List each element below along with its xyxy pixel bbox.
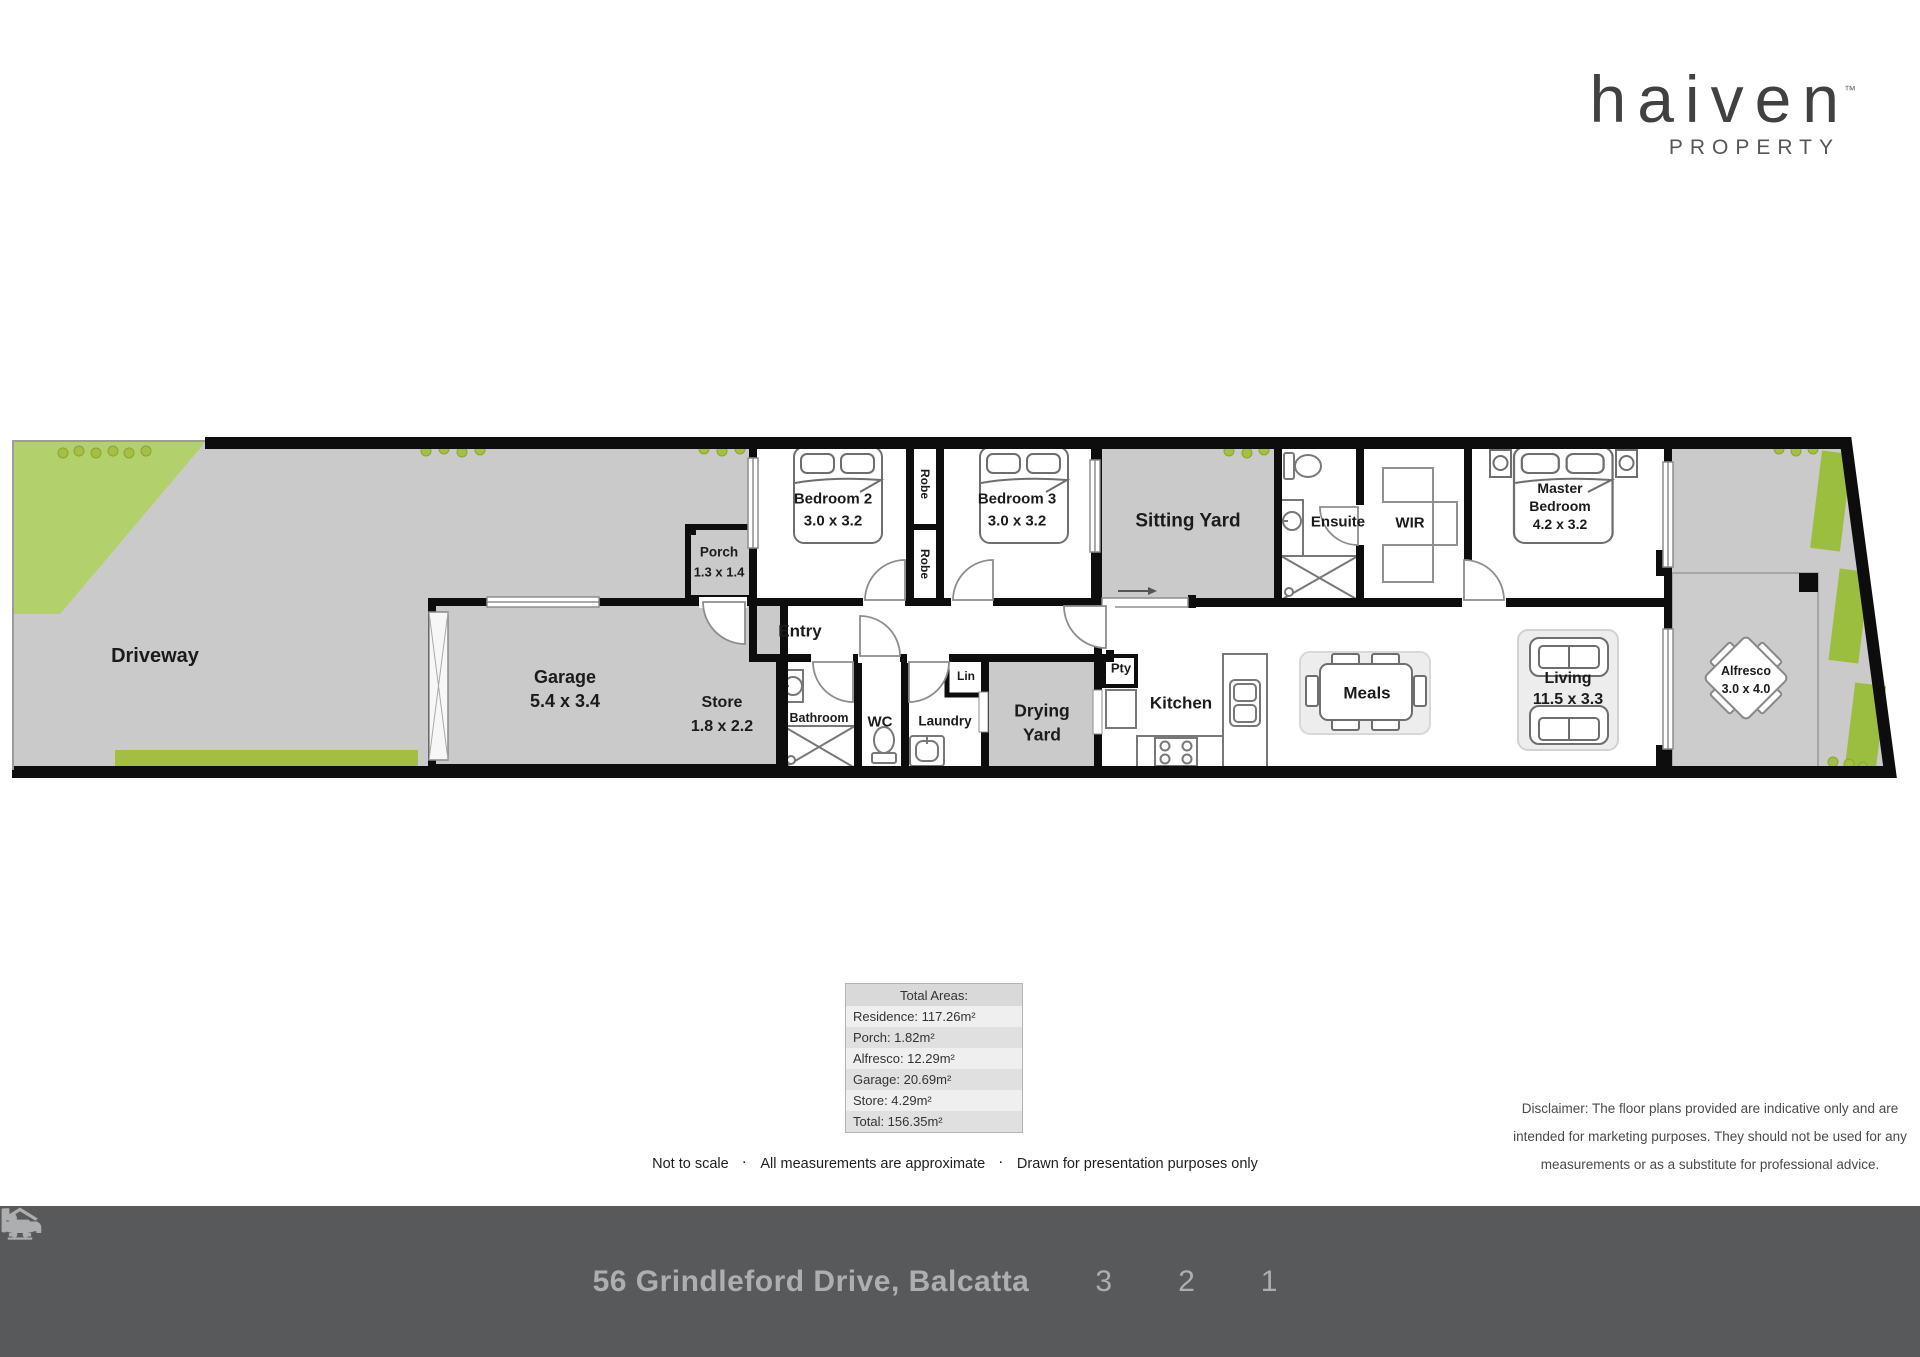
footnote: Not to scale·All measurements are approx… [652,1156,1258,1172]
area-row-alfresco: Alfresco: 12.29m² [846,1048,1022,1069]
footer-bar: 56 Grindleford Drive, Balcatta 3 [0,1206,1920,1357]
area-row-store: Store: 4.29m² [846,1090,1022,1111]
footnote-presentation: Drawn for presentation purposes only [1017,1156,1258,1172]
footnote-separator: · [743,1157,747,1169]
toilet-icon-ensuite [1284,453,1321,479]
door-bedroom2 [865,560,905,600]
label-bedroom2: Bedroom 2 [794,492,872,507]
disclaimer-line-3: measurements or as a substitute for prof… [1505,1151,1915,1179]
label-sitting-yard: Sitting Yard [1135,512,1240,531]
label-driveway: Driveway [111,646,199,666]
door-laundry-rear [979,692,988,732]
total-areas-panel: Total Areas: Residence: 117.26m² Porch: … [845,983,1023,1133]
baths-stat: 2 [1164,1265,1195,1299]
area-row-residence: Residence: 117.26m² [846,1006,1022,1027]
door-hall-kitchen [1064,606,1106,648]
door-bathroom [813,662,853,702]
door-laundry [909,662,949,702]
label-bedroom2-dim: 3.0 x 3.2 [804,514,862,529]
label-alfresco-dim: 3.0 x 4.0 [1722,683,1771,696]
property-address: 56 Grindleford Drive, Balcatta [593,1265,1030,1299]
baths-count: 2 [1178,1265,1195,1299]
door-bedroom3 [953,560,993,600]
label-linen: Lin [957,670,975,682]
sofa-icons [1518,630,1618,750]
shower-icon-bathroom [783,726,855,768]
label-living: Living [1544,671,1591,687]
label-living-dim: 11.5 x 3.3 [1533,692,1603,708]
shower-icon-ensuite [1281,556,1358,600]
toilet-icon-wc [872,727,896,763]
floor-plan-page: haiven™ PROPERTY [0,0,1920,1357]
beds-stat: 3 [1081,1265,1112,1299]
door-master [1464,560,1504,600]
disclaimer: Disclaimer: The floor plans provided are… [1505,1095,1915,1179]
disclaimer-line-1: Disclaimer: The floor plans provided are… [1505,1095,1915,1123]
garage-door-icon [429,612,448,760]
label-robe-top: Robe [919,469,931,499]
beds-count: 3 [1095,1265,1112,1299]
cooktop-icon [1155,738,1197,766]
window-bedroom3-right [1090,460,1100,552]
label-drying-2: Yard [1023,726,1061,744]
label-wir: WIR [1395,516,1424,531]
label-kitchen: Kitchen [1150,695,1212,712]
label-pantry: Pty [1111,662,1131,675]
fridge-icon [1106,690,1136,728]
alfresco-post [1799,573,1818,592]
window-garage-front [487,597,599,607]
label-ensuite: Ensuite [1311,515,1365,530]
label-garage-dim: 5.4 x 3.4 [530,692,600,710]
label-porch-dim: 1.3 x 1.4 [694,566,745,579]
label-laundry: Laundry [918,714,971,728]
footnote-scale: Not to scale [652,1156,729,1172]
door-drying-yard [1093,690,1102,734]
label-meals: Meals [1343,685,1390,702]
window-master-right [1663,462,1673,567]
porch-area [688,527,753,598]
label-master-2: Bedroom [1529,499,1590,513]
area-row-total: Total: 156.35m² [846,1111,1022,1132]
label-master-1: Master [1537,481,1582,495]
label-bathroom: Bathroom [789,712,848,725]
label-garage: Garage [534,668,596,686]
label-bedroom3-dim: 3.0 x 3.2 [988,514,1046,529]
footer-content: 56 Grindleford Drive, Balcatta 3 [593,1265,1278,1299]
label-wc: WC [868,715,893,730]
label-master-dim: 4.2 x 3.2 [1533,517,1588,531]
footnote-separator2: · [999,1157,1003,1169]
sliding-door-living [1663,629,1673,749]
label-alfresco: Alfresco [1721,665,1771,678]
area-row-garage: Garage: 20.69m² [846,1069,1022,1090]
label-drying-1: Drying [1014,702,1069,720]
label-store-dim: 1.8 x 2.2 [691,719,753,735]
label-bedroom3: Bedroom 3 [978,492,1056,507]
cars-stat: 1 [1247,1265,1278,1299]
label-store: Store [702,695,743,711]
label-porch: Porch [700,545,738,559]
window-bedroom2-left [748,458,758,548]
laundry-tub-icon [910,736,944,766]
area-row-porch: Porch: 1.82m² [846,1027,1022,1048]
label-entry: Entry [778,623,821,640]
total-areas-title: Total Areas: [846,984,1022,1006]
porch-post [686,525,696,535]
disclaimer-line-2: intended for marketing purposes. They sh… [1505,1123,1915,1151]
sink-icon [1230,680,1260,726]
footnote-measurements: All measurements are approximate [760,1156,985,1172]
door-wc [860,616,900,656]
label-robe-bottom: Robe [919,549,931,579]
cars-count: 1 [1261,1265,1278,1299]
